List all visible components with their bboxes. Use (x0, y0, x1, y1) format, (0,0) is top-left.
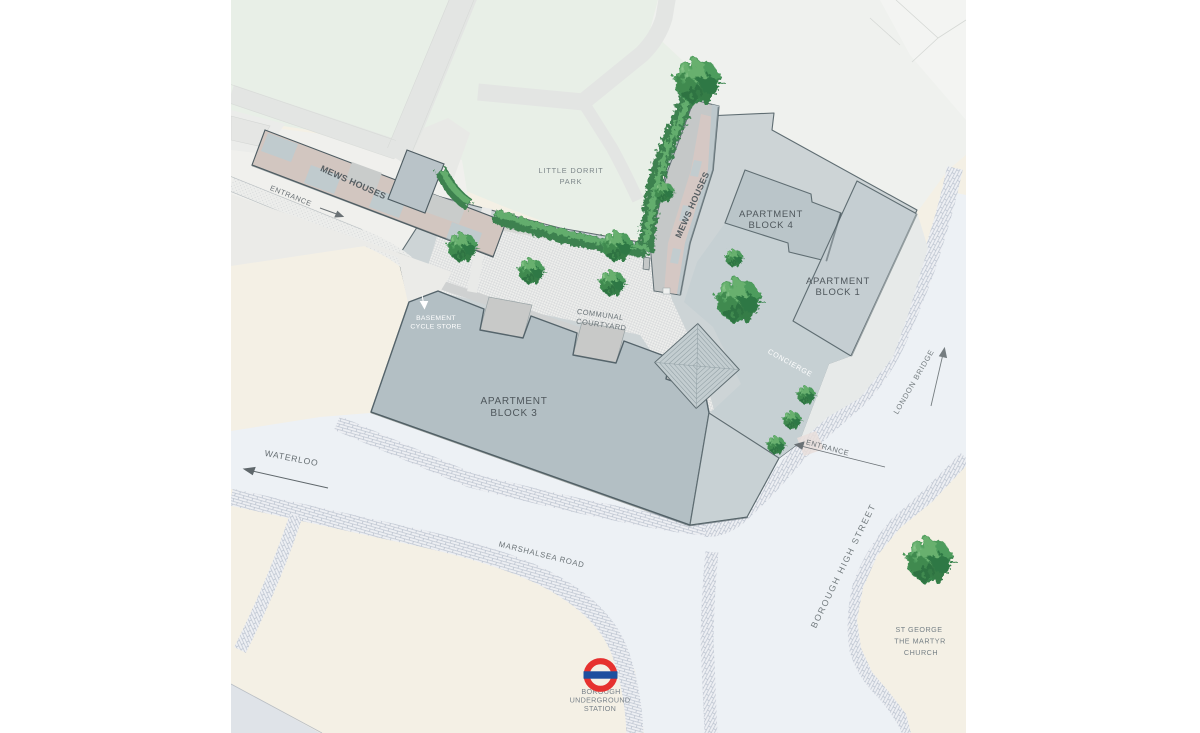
svg-text:PARK: PARK (560, 177, 583, 186)
svg-text:THE MARTYR: THE MARTYR (894, 637, 946, 646)
svg-text:APARTMENT: APARTMENT (480, 396, 547, 407)
svg-text:STATION: STATION (584, 704, 616, 713)
svg-text:BLOCK 1: BLOCK 1 (815, 287, 860, 298)
svg-text:LITTLE DORRIT: LITTLE DORRIT (538, 166, 603, 175)
svg-text:BASEMENT: BASEMENT (416, 315, 456, 322)
svg-text:BLOCK 3: BLOCK 3 (490, 408, 537, 419)
svg-text:APARTMENT: APARTMENT (806, 276, 870, 287)
svg-text:CHURCH: CHURCH (904, 648, 938, 657)
svg-text:BLOCK 4: BLOCK 4 (748, 220, 793, 231)
svg-text:APARTMENT: APARTMENT (739, 209, 803, 220)
svg-text:CYCLE STORE: CYCLE STORE (410, 324, 461, 331)
svg-text:ST GEORGE: ST GEORGE (895, 625, 942, 634)
